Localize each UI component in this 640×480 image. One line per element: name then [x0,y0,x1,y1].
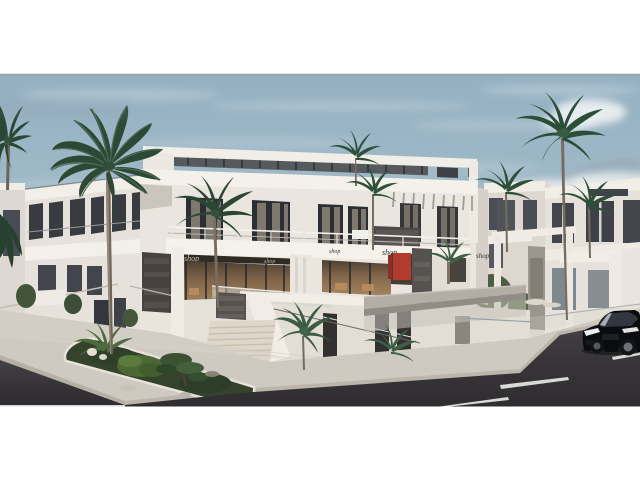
svg-text:shop: shop [329,249,340,255]
svg-text:shop: shop [476,252,490,260]
